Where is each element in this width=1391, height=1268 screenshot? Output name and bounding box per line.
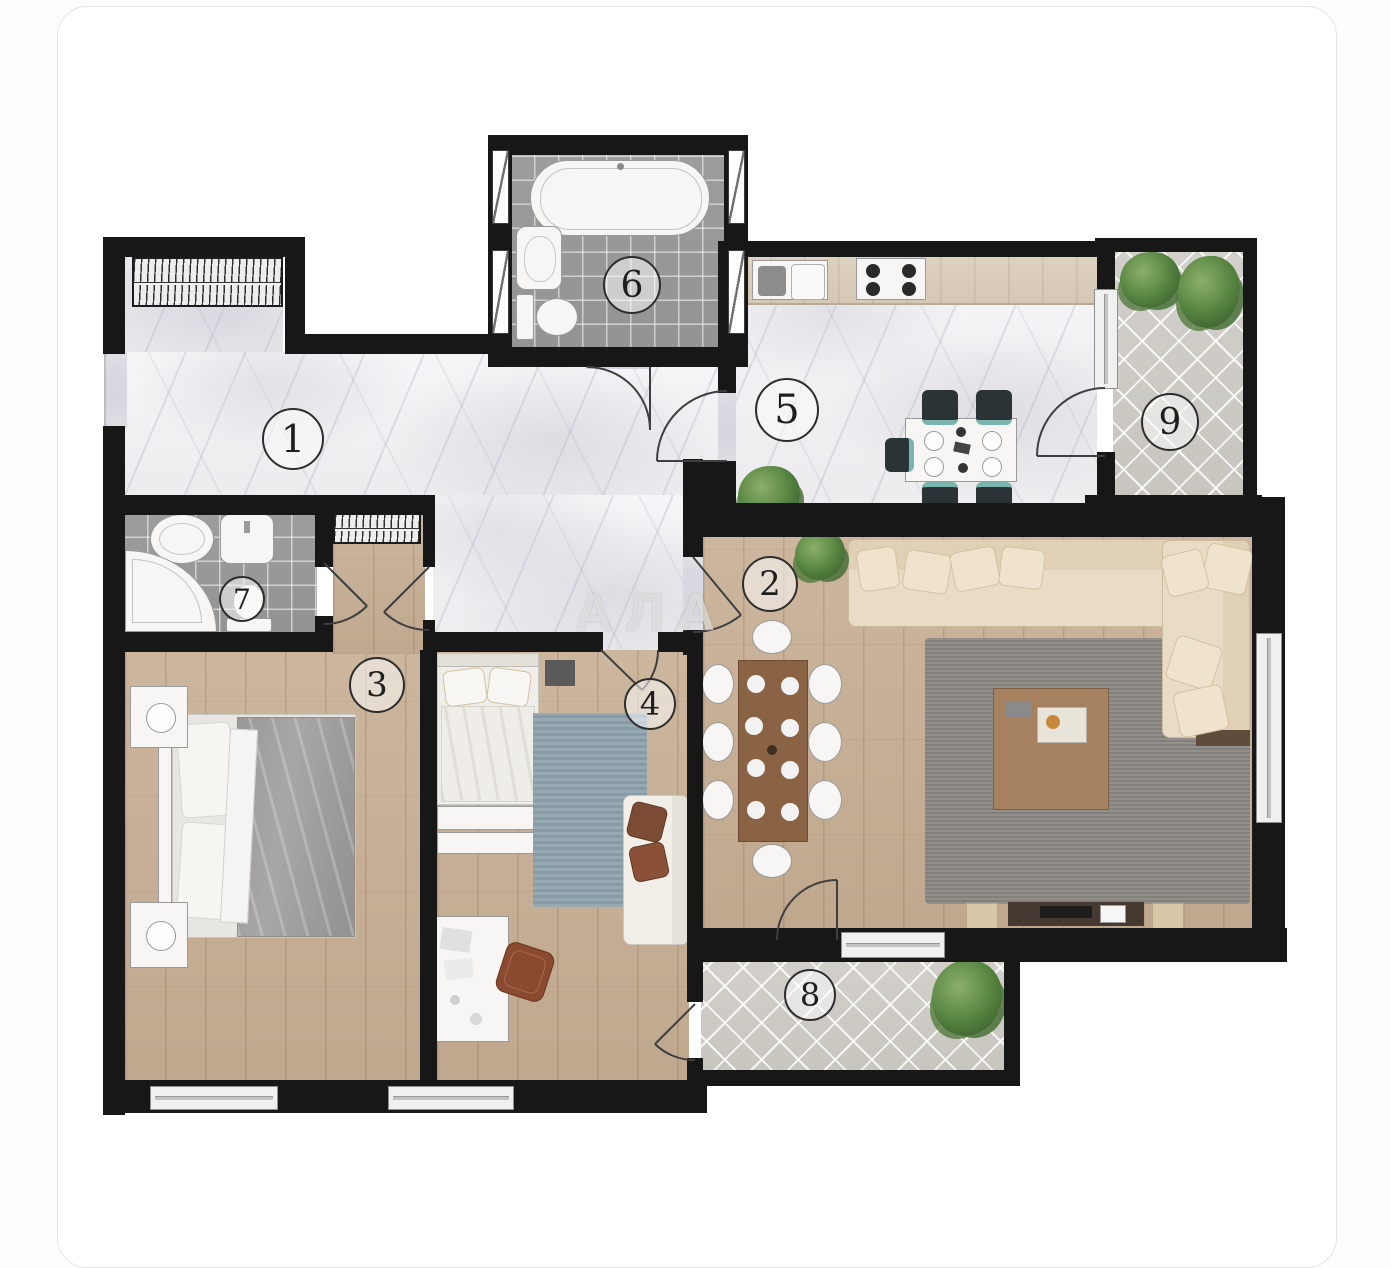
room-label-9: 9 — [1141, 393, 1199, 451]
room-label-6: 6 — [603, 256, 661, 314]
door-bath7 — [324, 563, 367, 624]
room-number: 1 — [281, 417, 305, 461]
room-number: 5 — [774, 387, 799, 433]
room-label-3: 3 — [349, 657, 405, 713]
room-number: 3 — [366, 665, 388, 705]
room-label-4: 4 — [624, 678, 676, 730]
floor-plan: 1 2 3 4 5 6 7 8 9 АЛА — [0, 0, 1391, 1200]
watermark: АЛА — [575, 583, 729, 643]
room-label-1: 1 — [262, 408, 324, 470]
door-balcony9 — [1037, 388, 1105, 456]
door-bath6 — [587, 367, 650, 430]
room-number: 7 — [233, 583, 251, 616]
room-number: 2 — [759, 564, 781, 604]
door-room3 — [384, 567, 429, 630]
door-kitchen — [657, 391, 727, 461]
room-label-5: 5 — [755, 378, 819, 442]
room-label-2: 2 — [742, 556, 798, 612]
room-label-8: 8 — [784, 969, 836, 1021]
door-balcony8-living — [777, 880, 837, 940]
room-number: 6 — [621, 265, 644, 306]
room-label-7: 7 — [219, 576, 265, 622]
room-number: 8 — [800, 976, 820, 1014]
door-balcony8-room4 — [655, 1004, 695, 1060]
room-number: 9 — [1159, 402, 1182, 443]
room-number: 4 — [640, 685, 660, 723]
